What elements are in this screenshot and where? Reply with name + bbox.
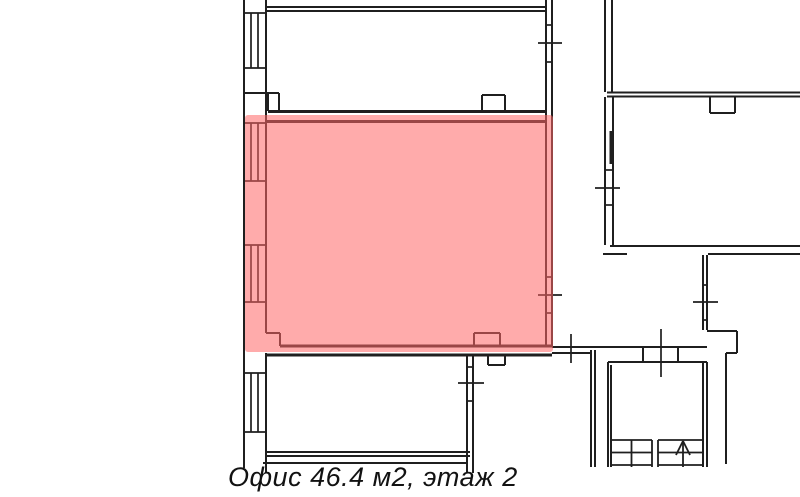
floor-plan-page: Офис 46.4 м2, этаж 2 (0, 0, 800, 497)
office-caption: Офис 46.4 м2, этаж 2 (228, 462, 518, 493)
selected-office-highlight[interactable] (245, 115, 553, 352)
stairs-direction-arrow (676, 441, 690, 467)
floor-plan-svg (0, 0, 800, 497)
